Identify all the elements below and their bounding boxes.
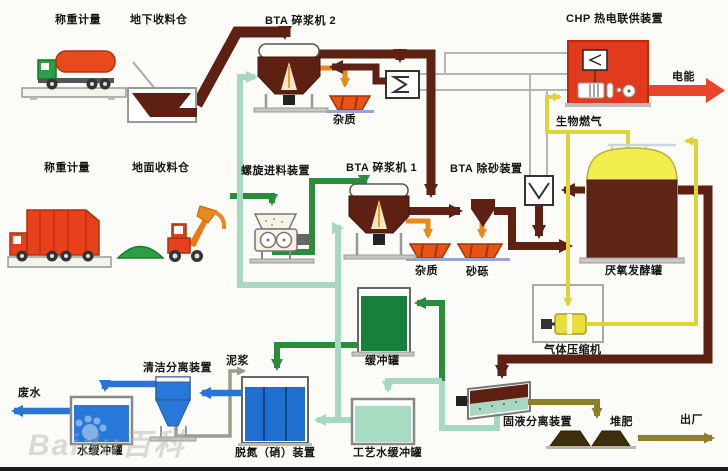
gas-dome — [587, 148, 677, 182]
loader-to-feeder-line — [230, 196, 272, 203]
image-bottom-border — [0, 467, 728, 471]
label-gas-compressor: 气体压缩机 — [544, 344, 602, 356]
label-digester: 厌氧发酵罐 — [605, 265, 663, 277]
pulper-1 — [344, 184, 416, 259]
label-ground-bin: 地面收料仓 — [132, 162, 190, 174]
underground-bin — [128, 62, 197, 122]
denitrification-tank — [238, 377, 312, 446]
label-buffer-tank: 缓冲罐 — [365, 355, 400, 367]
waste-heap — [118, 247, 163, 259]
pulper-2 — [254, 44, 328, 112]
water-to-pulper1-line — [338, 228, 341, 420]
label-impurities-top: 杂质 — [333, 114, 356, 126]
label-solid-liquid-separator: 固液分离装置 — [503, 416, 572, 428]
label-process-water-tank: 工艺水缓冲罐 — [353, 447, 422, 459]
heat-exchanger-1 — [386, 71, 419, 98]
label-chp-unit: CHP 热电联供装置 — [566, 13, 663, 25]
label-biogas: 生物燃气 — [556, 116, 602, 128]
screw-feeder-unit — [250, 214, 314, 263]
process-water-tank — [352, 399, 414, 444]
anaerobic-digester — [580, 148, 684, 263]
process-flow-diagram: 称重计量 地下收料仓 BTA 碎浆机 2 CHP 热电联供装置 电能 杂质 生物… — [0, 0, 728, 471]
buffer-tank — [352, 288, 414, 356]
water-to-pulper2-line — [240, 77, 255, 288]
buffer-to-denitrification-line — [277, 345, 360, 368]
liquid-to-buffer-tank-line — [417, 303, 442, 381]
label-impurities-mid: 杂质 — [415, 265, 438, 277]
label-slurry: 泥浆 — [226, 355, 249, 367]
compost-piles — [546, 431, 636, 449]
impurity-skip-top — [326, 96, 374, 113]
label-wastewater: 废水 — [18, 387, 41, 399]
label-shipment: 出厂 — [680, 414, 703, 426]
water-to-process-tank-line — [388, 381, 442, 390]
cleaning-separator-unit — [150, 377, 196, 441]
label-underground-bin: 地下收料仓 — [130, 14, 188, 26]
heating-water-lines — [420, 53, 572, 176]
grit-removal-unit — [471, 199, 495, 227]
label-weighing-mid: 称重计量 — [44, 162, 90, 174]
label-weighing-top: 称重计量 — [55, 14, 101, 26]
chp-unit — [565, 41, 651, 107]
heat-exchanger-2 — [525, 176, 553, 205]
label-pulper-2: BTA 碎浆机 2 — [265, 15, 336, 27]
label-water-buffer-tank: 水缓冲罐 — [77, 445, 123, 457]
piping-and-equipment — [0, 0, 728, 471]
water-buffer-tank — [71, 397, 132, 444]
engine-icon — [578, 83, 604, 98]
grit-skip — [454, 244, 510, 261]
label-electric-power: 电能 — [672, 71, 695, 83]
label-denitrification: 脱氮（硝）装置 — [235, 447, 316, 459]
label-compost: 堆肥 — [610, 416, 633, 428]
label-pulper-1: BTA 碎浆机 1 — [346, 162, 417, 174]
heat-exchanger-return-line — [332, 67, 387, 81]
grit-to-digester-line — [494, 211, 570, 246]
solid-liquid-separator-unit — [456, 382, 530, 419]
tanker-truck — [22, 51, 126, 100]
separator-to-water-tank-line — [105, 384, 158, 389]
label-cleaning-separator: 清洁分离装置 — [143, 362, 212, 374]
garbage-truck — [8, 210, 111, 267]
label-grit: 砂砾 — [466, 266, 489, 278]
label-screw-feeder: 螺旋进料装置 — [241, 165, 310, 177]
wheel-loader — [168, 206, 224, 262]
label-grit-removal: BTA 除砂装置 — [450, 163, 522, 175]
